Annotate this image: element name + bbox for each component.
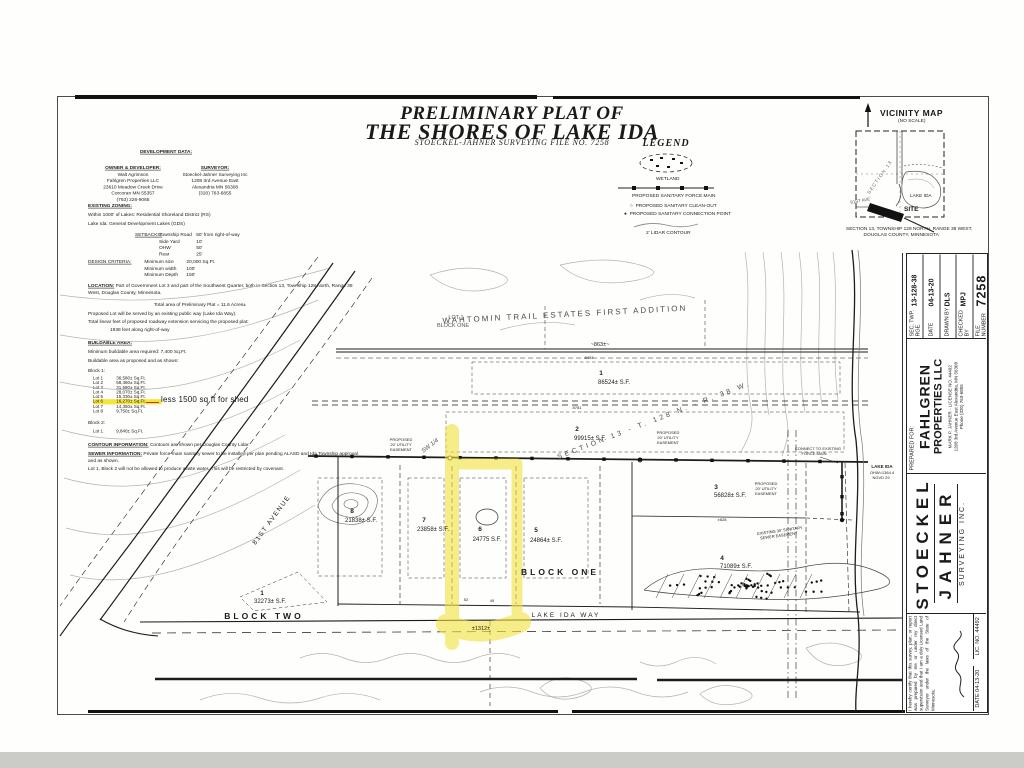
plat-label: 52 [464, 597, 469, 602]
certification-text: I hereby certify that this survey, plan,… [907, 616, 936, 711]
plat-label: 32273± S.F. [254, 599, 286, 605]
legend-wetland-label: WETLAND [656, 176, 679, 182]
title-block-info-row: FILE NUMBER7258 [973, 254, 989, 338]
legend-cleanout-label: PROPOSED SANITARY CLEAN-OUT [636, 203, 717, 208]
plat-label: LOT 1 [448, 315, 463, 321]
plat-label: SECTION 13 - T. 128 N. - R. 38 W. [557, 380, 753, 461]
certification-date: DATE 04-13-20 [973, 666, 981, 711]
plat-label: 24864± S.F. [530, 538, 562, 544]
plat-label: 86524± S.F. [598, 380, 630, 386]
plat-label: 8 [350, 508, 354, 515]
plat-label: EASEMENT [390, 447, 413, 452]
divider [957, 484, 958, 604]
prepared-for-label: PREPARED FOR: [909, 339, 915, 470]
plat-label: 23858± S.F. [417, 527, 449, 533]
client-name-line1: FAHLGREN [916, 339, 932, 473]
plat-label: 1 [599, 370, 603, 377]
plat-label: 3 [714, 484, 718, 491]
legend-force-main-label: PROPOSED SANITARY FORCE MAIN [632, 193, 715, 199]
plat-label: 7 [422, 517, 426, 524]
plat-label: 24775 S.F. [473, 537, 502, 543]
lidar-contour-symbol-icon [632, 220, 700, 230]
zoning-line: Lake Ida: General Development Lakes (GDS… [88, 221, 185, 227]
plat-label: EASEMENT [657, 440, 680, 445]
client-name-line2: PROPERTIES LLC [932, 339, 944, 473]
surveyor-address-line: 1208 3rd Avenue East Alexandria, MN 5630… [953, 339, 959, 473]
setback-value: 50' from right-of-way [196, 232, 240, 238]
plat-label: SW 1/4 [421, 437, 441, 454]
plat-label: BLOCK TWO [224, 611, 303, 621]
vicinity-map-drawing [846, 124, 986, 234]
force-main-symbol-icon [618, 184, 714, 192]
plat-label: NGVD 29 [872, 475, 890, 480]
plat-label: 49 [490, 598, 495, 603]
surveyor-line: (320) 763-6855 [167, 190, 263, 196]
title-block-info-row: DRAWN BYDLS [940, 254, 956, 338]
legend-title: LEGEND [606, 138, 726, 149]
scanned-plat-page: PRELIMINARY PLAT OF THE SHORES OF LAKE I… [0, 0, 1024, 768]
wetland-dots [669, 573, 823, 600]
certification-license: LIC. NO. 44492 [973, 614, 981, 659]
top-edge-bar [75, 95, 537, 99]
title-block-certification-section: I hereby certify that this survey, plan,… [907, 614, 986, 711]
plat-drawing: WAHTOMIN TRAIL ESTATES FIRST ADDITIONLOT… [57, 248, 908, 714]
legend-cleanout-row: ○ PROPOSED SANITARY CLEAN-OUT [630, 203, 717, 209]
legend-connection-row: ● PROPOSED SANITARY CONNECTION POINT [624, 211, 731, 217]
plat-label: 2 [575, 426, 579, 433]
plat-label: 8492 [585, 355, 595, 360]
top-edge-bar [553, 96, 860, 99]
title-block-client-section: PREPARED FOR: FAHLGREN PROPERTIES LLC MA… [907, 339, 986, 474]
plat-label: BLOCK ONE [521, 567, 599, 577]
title-block-outer-line [902, 253, 903, 713]
legend-connection-label: PROPOSED SANITARY CONNECTION POINT [630, 211, 732, 216]
zoning-line: Within 1000' of Lakes: Residential Shore… [88, 212, 211, 218]
plat-label: 56828± S.F. [714, 493, 746, 499]
vicinity-caption-line2: DOUGLAS COUNTY, MINNESOTA [846, 232, 956, 238]
vicinity-site-label: SITE [904, 206, 918, 213]
plat-label: 6 [478, 526, 482, 533]
surveyor-phone-line: Phone (320) 763-6855 [959, 339, 965, 473]
plat-label: 1 [260, 590, 264, 597]
plat-label: LAKE IDA WAY [532, 612, 601, 619]
plat-label: LAKE IDA [871, 464, 893, 469]
divider [934, 484, 935, 604]
plat-label: ±628 [718, 517, 728, 522]
plat-labels: WAHTOMIN TRAIL ESTATES FIRST ADDITIONLOT… [224, 248, 895, 632]
plat-label: 21838± S.F. [345, 518, 377, 524]
firm-name-line1: STOECKEL [913, 474, 933, 613]
scan-artifact-strip [0, 752, 1024, 768]
legend-panel: LEGEND WETLAND PROPOSED SANITARY FORCE M… [606, 138, 726, 238]
plat-label: 8781 [573, 405, 583, 410]
title-block: SEC. TWP. RGE.13-128-38DATE04-13-20DRAWN… [906, 253, 988, 713]
surveyor-block: SURVEYOR: Stoeckel-Jahner Surveying Inc … [167, 165, 263, 197]
plat-label: 4 [720, 555, 724, 562]
wetland-symbol-icon [638, 152, 694, 174]
vicinity-lake-label: LAKE IDA [910, 193, 932, 199]
title-block-info-row: DATE04-13-20 [923, 254, 939, 338]
vicinity-title: VICINITY MAP [880, 108, 943, 118]
vicinity-map-panel: VICINITY MAP (NO SCALE) SECTION 13 LAKE … [846, 100, 986, 240]
firm-name-line3: SURVEYING INC. [959, 474, 966, 613]
surveyor-license-line: MARK P. JAHNER - LICENSE NO. 44492 [947, 339, 953, 473]
legend-contour-label: 2' LIDAR CONTOUR [646, 230, 691, 236]
plat-label: ±1312± [472, 626, 490, 632]
title-block-info-row: CHECKED BYMPJ [956, 254, 972, 338]
plat-label: 5 [534, 527, 538, 534]
plat-label: EASEMENT [755, 491, 778, 496]
plat-label: 71089± S.F. [720, 564, 752, 570]
signature-icon [953, 629, 967, 699]
plat-label: FORCE MAIN [801, 451, 826, 456]
sanitary-connection-marker [840, 518, 844, 522]
zoning-heading: EXISTING ZONING: [88, 203, 132, 209]
plat-label: WAHTOMIN TRAIL ESTATES FIRST ADDITION [442, 304, 687, 326]
title-block-info-row: SEC. TWP. RGE.13-128-38 [907, 254, 923, 338]
title-block-info-section: SEC. TWP. RGE.13-128-38DATE04-13-20DRAWN… [907, 254, 986, 339]
plat-label: 81ST AVENUE [251, 494, 292, 546]
plat-label: ~863±~ [591, 342, 610, 348]
development-data-heading: DEVELOPMENT DATA: [106, 149, 226, 155]
plat-label: BLOCK ONE [437, 323, 469, 329]
firm-name-line2: JAHNER [936, 474, 956, 613]
owner-developer-block: OWNER & DEVELOPER: Walt Agrimson Fahlgre… [88, 165, 178, 203]
title-block-firm-section: STOECKEL JAHNER SURVEYING INC. [907, 474, 986, 614]
